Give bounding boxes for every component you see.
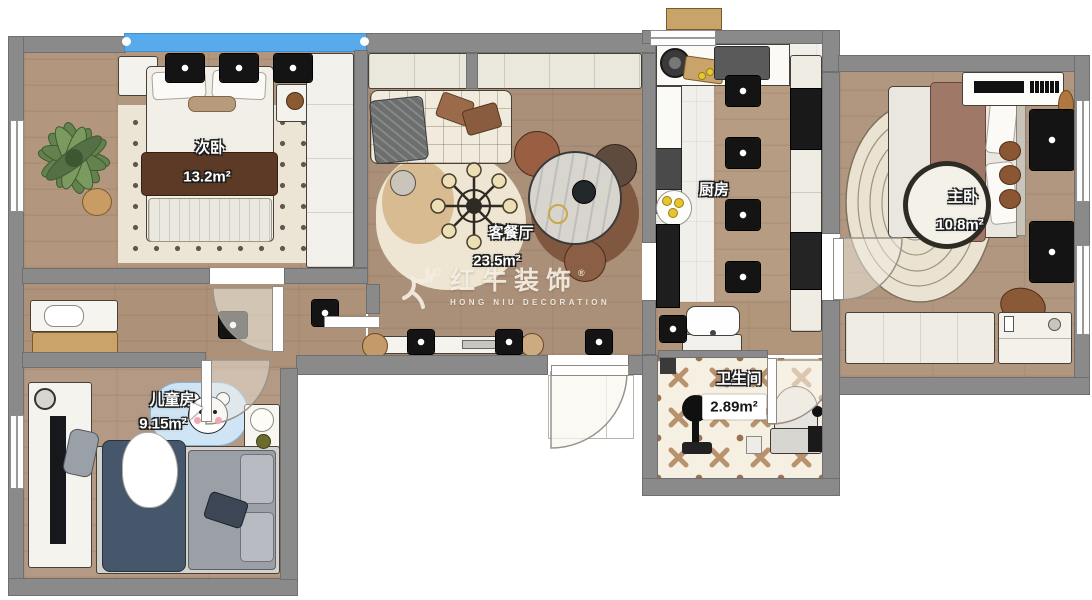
bed-foot-bench (148, 198, 272, 242)
window-balcony (124, 33, 370, 52)
bolster-cushion (999, 189, 1021, 209)
watermark-subtitle: HONG NIU DECORATION (450, 298, 610, 307)
round-side-table (520, 333, 544, 357)
lemon (706, 68, 714, 76)
room-name-living-dining: 客餐厅 (488, 226, 533, 241)
headboard-panel (220, 54, 258, 82)
wall-living-bottom (296, 355, 548, 375)
bolster-cushion (999, 165, 1021, 185)
pillow (240, 454, 274, 504)
ceiling-spotlight (496, 330, 522, 354)
throw-blanket (369, 95, 429, 164)
secbed-door-leaf (272, 286, 284, 352)
entry-landing (548, 375, 634, 439)
lemon (662, 196, 672, 206)
headboard (1016, 88, 1026, 236)
floor-mat-spotlight (726, 262, 760, 292)
storage-cabinet-row (368, 53, 642, 89)
appliance (654, 148, 682, 190)
window-master-right (1076, 100, 1090, 202)
wall-bottom-left (8, 578, 298, 596)
tv-device (462, 340, 496, 349)
wall-hall-living (366, 284, 380, 314)
ceiling-spotlight (586, 330, 612, 354)
plush-blanket (122, 432, 178, 508)
side-tray-table (390, 170, 416, 196)
wall-secbed-bottom (22, 268, 210, 284)
table-lamp (250, 408, 274, 432)
watermark-brand: 红牛装饰® (450, 269, 610, 294)
room-area-master-bedroom: 10.8m² (936, 218, 984, 233)
kids-door-leaf (201, 360, 212, 422)
nightstand-black (1030, 222, 1074, 282)
room-area-secondary-bedroom: 13.2m² (183, 170, 231, 185)
wall-living-kitchen-2 (642, 300, 656, 355)
registered-mark: ® (578, 268, 592, 278)
bath-door-leaf (767, 358, 777, 424)
entry-door-leaf (551, 365, 629, 376)
ceiling-spotlight (660, 316, 686, 342)
window-joint-dot (360, 37, 369, 46)
room-name-secondary-bedroom: 次卧 (195, 141, 225, 156)
wall-top-left (8, 36, 126, 53)
built-in-appliance (790, 232, 822, 290)
room-area-living-dining: 23.5m² (473, 254, 521, 269)
headboard-panel (166, 54, 204, 82)
window-left-1 (10, 120, 24, 212)
floor-mat-spotlight (726, 200, 760, 230)
decor-plate (286, 92, 304, 110)
wardrobe (306, 53, 354, 268)
window-master-right-2 (1076, 245, 1090, 335)
wall-top-mid (366, 33, 656, 53)
wall-bath-top (658, 350, 768, 358)
floor-plan: 次卧 13.2m² 客餐厅 23.5m² 厨房 主卧 10.8m² 儿童房 9.… (0, 0, 1092, 600)
bear-eye (213, 410, 217, 414)
speaker (34, 388, 56, 410)
pillow (240, 512, 274, 562)
faucet (710, 330, 716, 336)
wall-kids-top (22, 352, 206, 368)
wall-master-bottom (838, 377, 1090, 395)
window-kitchen (650, 30, 716, 46)
lemon (674, 198, 684, 208)
wall-living-kitchen (642, 53, 656, 243)
bolster-cushion (999, 141, 1021, 161)
room-name-bathroom: 卫生间 (716, 372, 761, 387)
wall-kids-right (280, 368, 298, 580)
window-left-2 (10, 415, 24, 489)
shower-base (682, 442, 712, 454)
master-door-leaf (833, 238, 844, 300)
hall-wash-basin (44, 305, 84, 327)
window-joint-dot (122, 37, 131, 46)
room-area-bathroom: 2.89m² (702, 395, 766, 420)
lemon (698, 72, 706, 80)
key-row (1030, 81, 1060, 93)
ceiling-spotlight (219, 312, 247, 338)
wall-top-master (838, 55, 1090, 72)
wall-kitchen-master-2 (822, 300, 840, 496)
window-planter-box (666, 8, 722, 30)
shelf-round-item (1048, 318, 1061, 331)
shelf-book (1004, 316, 1014, 332)
floor-mat-spotlight (726, 138, 760, 168)
ceiling-spotlight (408, 330, 434, 354)
room-area-kids-room: 9.15m² (139, 417, 187, 432)
watermark: 红牛装饰® HONG NIU DECORATION (398, 266, 610, 310)
kitchen-sink (714, 46, 770, 80)
bear-cheek (215, 417, 222, 424)
built-in-oven (790, 88, 822, 150)
room-name-kitchen: 厨房 (699, 183, 729, 198)
place-setting (548, 204, 568, 224)
wall-secbed-right (354, 50, 368, 268)
wall-secbed-bottom-2 (284, 268, 368, 284)
wall-bath-left (642, 355, 658, 495)
wall-bath-bottom (642, 478, 840, 496)
table-centerpiece (572, 180, 596, 204)
lumbar-pillow (188, 96, 236, 112)
wok-pan-center (669, 57, 681, 69)
room-name-master-bedroom: 主卧 (948, 190, 978, 205)
keyboard (974, 81, 1024, 93)
master-wardrobe (845, 312, 995, 364)
headboard-panel (274, 54, 312, 82)
wall-kitchen-master (822, 72, 840, 234)
bull-logo-icon (398, 266, 442, 310)
floor-mat-spotlight (726, 76, 760, 106)
cabinet-divider-wall (466, 53, 478, 89)
refrigerator (656, 224, 680, 308)
nightstand-black (1030, 110, 1074, 170)
plant-pot (256, 434, 271, 449)
hall-living-door-leaf (324, 316, 380, 328)
floor-drain (746, 436, 762, 454)
monitor (50, 416, 66, 544)
lemon (668, 208, 678, 218)
ottoman (82, 188, 112, 216)
bathroom-corner-block (660, 358, 676, 374)
